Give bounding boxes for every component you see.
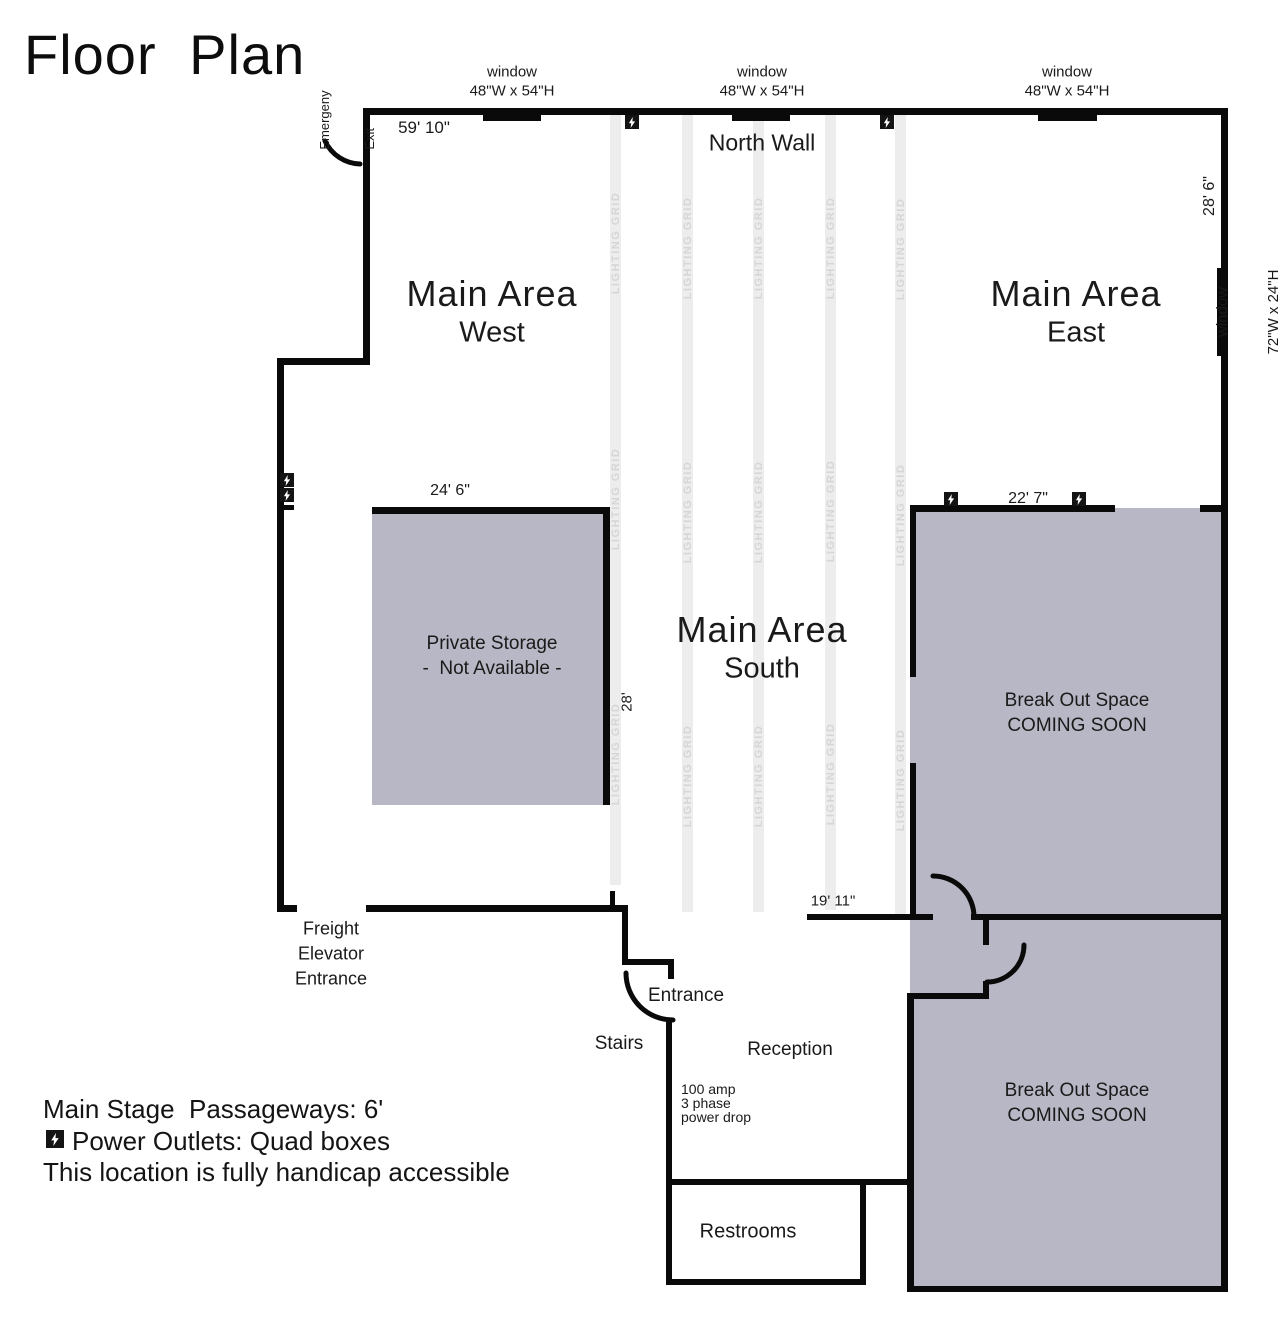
power-outlet-icon [280, 473, 294, 487]
entrance-label: Entrance [648, 985, 724, 1007]
legend-passageways: Main Stage Passageways: 6' [43, 1094, 383, 1125]
window-label: window [487, 64, 537, 81]
window-label-east: window 72"W x 24"H [1180, 270, 1280, 355]
window-size-label: 72"W x 24"H [1265, 270, 1280, 355]
emergency-exit-line2: Exit [362, 90, 377, 149]
window-label: window [737, 64, 787, 81]
breakout1-label-line2: COMING SOON [1007, 715, 1146, 737]
window-label: window [1214, 270, 1231, 355]
storage-label-line1: Private Storage [427, 633, 558, 655]
storage-label-line2: - Not Available - [422, 658, 561, 680]
power-outlet-icon [880, 115, 894, 129]
window-size-label: 48"W x 54"H [1025, 83, 1110, 100]
power-outlet-icon [280, 488, 294, 502]
stairs-label: Stairs [595, 1033, 644, 1055]
dimension-breakout-width: 22' 7" [1008, 490, 1048, 508]
power-drop-line2: 3 phase [681, 1096, 751, 1110]
power-drop-line1: 100 amp [681, 1082, 751, 1096]
dimension-storage-width: 24' 6" [430, 482, 470, 500]
emergency-exit-label: Emergeny Exit [287, 90, 407, 149]
legend-accessibility: This location is fully handicap accessib… [43, 1157, 510, 1188]
window-label: window [1042, 64, 1092, 81]
power-outlet-legend-icon [46, 1130, 64, 1148]
north-wall-label: North Wall [709, 130, 816, 157]
breakout1-door-arc [933, 876, 974, 917]
restrooms-label: Restrooms [700, 1221, 797, 1244]
room-label-south-line2: South [724, 653, 800, 686]
vestibule-door-arc [987, 945, 1024, 982]
dimension-east-height: 28' 6" [1201, 176, 1219, 216]
floor-plan-canvas: Floor Plan LIGHTING GRID LIGHTING GRID L… [0, 0, 1280, 1327]
breakout1-label-line1: Break Out Space [1005, 690, 1150, 712]
dimension-storage-height: 28' [619, 692, 636, 712]
power-outlet-icon [944, 492, 958, 506]
window-size-label: 48"W x 54"H [720, 83, 805, 100]
window-size-label: 48"W x 54"H [470, 83, 555, 100]
power-outlet-icon [1072, 492, 1086, 506]
freight-label-line1: Freight [303, 919, 359, 940]
freight-label-line3: Entrance [295, 969, 367, 990]
power-drop-line3: power drop [681, 1110, 751, 1124]
emergency-exit-line1: Emergeny [317, 90, 332, 149]
legend-power-outlets: Power Outlets: Quad boxes [72, 1126, 390, 1157]
page-title: Floor Plan [24, 22, 305, 87]
power-drop-note: 100 amp 3 phase power drop [681, 1082, 751, 1124]
room-label-south-line1: Main Area [676, 609, 847, 651]
dimension-passage: 19' 11" [811, 893, 856, 910]
breakout2-label-line2: COMING SOON [1007, 1105, 1146, 1127]
breakout2-label-line1: Break Out Space [1005, 1080, 1150, 1102]
room-label-west-line2: West [459, 317, 525, 350]
room-label-east-line1: Main Area [990, 273, 1161, 315]
power-outlet-icon [625, 115, 639, 129]
freight-label-line2: Elevator [298, 944, 364, 965]
room-label-east-line2: East [1047, 317, 1105, 350]
reception-label: Reception [747, 1039, 833, 1061]
room-label-west-line1: Main Area [406, 273, 577, 315]
